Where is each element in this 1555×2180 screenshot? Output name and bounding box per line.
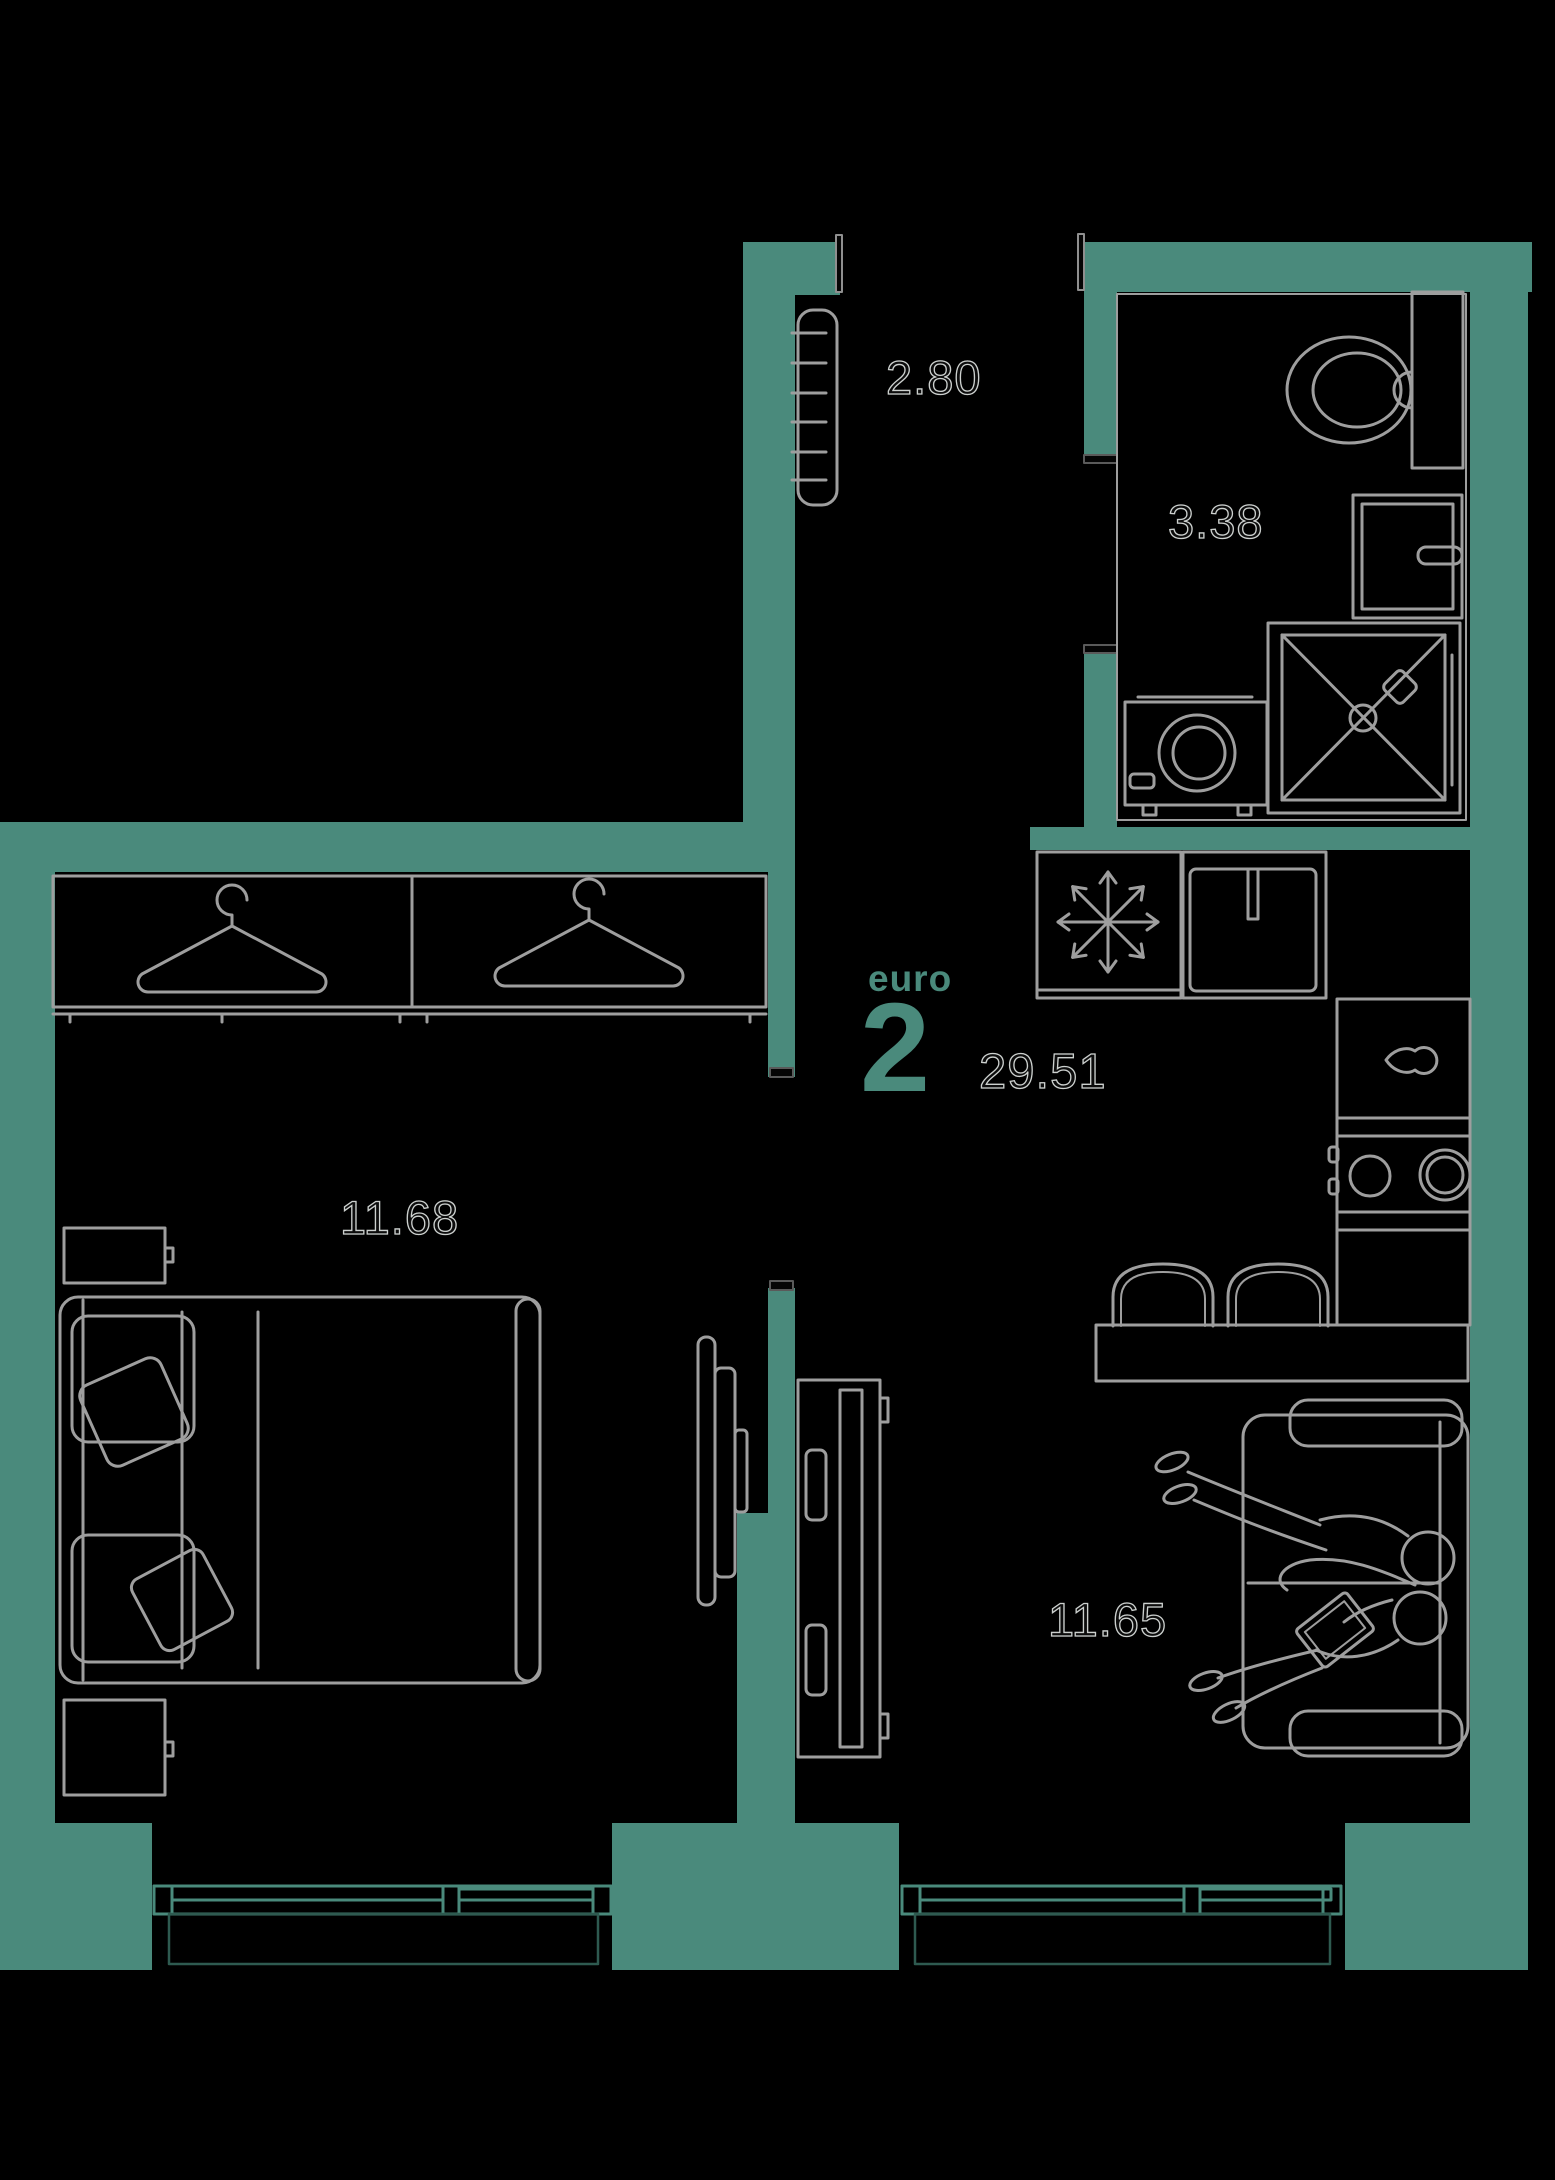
- tv-living: [798, 1380, 888, 1757]
- entry-door-jambs: [836, 234, 1084, 292]
- floorplan: 2.80 3.38 11.68 11.65 euro 2 29.51: [0, 0, 1555, 2180]
- snowflake-icon: [1058, 872, 1158, 972]
- unit-rooms-count: 2: [860, 988, 930, 1108]
- sofa: [1243, 1400, 1468, 1756]
- bathroom-door-jambs: [1084, 455, 1117, 653]
- tv-bedroom: [698, 1337, 747, 1605]
- area-label-bedroom: 11.68: [340, 1190, 459, 1245]
- chair: [1228, 1264, 1328, 1326]
- drop-handle-icon: [1386, 1048, 1437, 1074]
- furniture-layer: [0, 0, 1555, 2180]
- toilet: [1287, 292, 1463, 468]
- kitchen-sink: [1183, 852, 1326, 998]
- nightstand: [64, 1228, 173, 1283]
- area-label-bathroom: 3.38: [1168, 494, 1263, 549]
- window-bedroom: [154, 1886, 611, 1964]
- hanger-icon: [495, 879, 683, 986]
- area-label-hallway: 2.80: [886, 350, 981, 405]
- nightstand: [64, 1700, 173, 1795]
- person: [1153, 1448, 1454, 1590]
- chair: [1113, 1264, 1213, 1326]
- bed: [60, 1297, 540, 1683]
- shower: [1268, 623, 1460, 813]
- dining-table: [1096, 1325, 1468, 1381]
- radiator: [792, 310, 837, 505]
- hanger-icon: [138, 885, 326, 992]
- window-living: [902, 1886, 1341, 1964]
- washing-machine: [1125, 697, 1267, 815]
- wardrobe: [53, 876, 766, 1022]
- fridge: [1037, 852, 1181, 998]
- unit-total-area: 29.51: [979, 1044, 1107, 1100]
- pillows: [72, 1316, 236, 1662]
- bedroom-door-jambs: [770, 1068, 793, 1290]
- bathroom-sink: [1353, 495, 1462, 618]
- stove: [1329, 1147, 1470, 1200]
- person: [1187, 1591, 1446, 1726]
- area-label-living: 11.65: [1048, 1592, 1167, 1647]
